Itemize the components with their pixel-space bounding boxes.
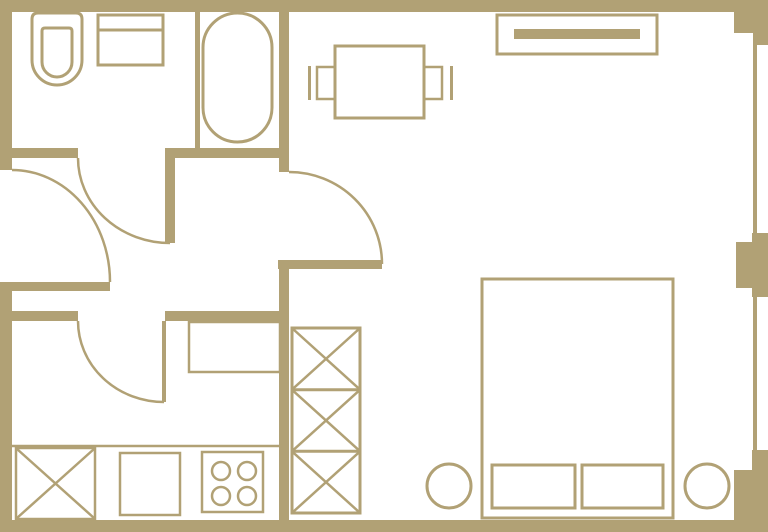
wall-pier-mid-right-outer bbox=[752, 233, 768, 297]
entry-door-swing bbox=[12, 170, 110, 282]
bathroom-door-leaf bbox=[165, 158, 175, 243]
pillow-right bbox=[582, 465, 663, 508]
chair-right-back bbox=[450, 66, 453, 100]
wall-hall-living-upper bbox=[279, 0, 289, 172]
kitchen-door-leaf bbox=[162, 321, 166, 402]
doors-layer bbox=[12, 158, 382, 402]
bathroom-layer bbox=[32, 13, 272, 142]
bedside-stool-right bbox=[685, 464, 729, 508]
wall-corner-bottom-right-inner bbox=[734, 470, 768, 532]
wall-pier-mid-right-inner bbox=[736, 242, 752, 288]
chair-left-seat bbox=[317, 67, 335, 99]
bedroom-layer bbox=[427, 15, 729, 518]
dining-layer bbox=[308, 46, 453, 118]
pillow-left bbox=[492, 465, 575, 508]
wall-kitchen-north-left bbox=[0, 311, 78, 321]
wall-kitchen-north-right bbox=[165, 311, 289, 321]
wardrobe-cross-bottom bbox=[293, 452, 359, 512]
double-bed bbox=[482, 279, 673, 518]
kitchen-layer bbox=[12, 322, 283, 519]
wall-exterior-left-upper bbox=[0, 0, 12, 170]
chair-left-back bbox=[308, 66, 311, 100]
floor-plan bbox=[0, 0, 768, 532]
bathtub bbox=[203, 13, 272, 142]
toilet-bowl bbox=[42, 28, 72, 77]
bedside-stool-left bbox=[427, 464, 471, 508]
window-glazing-upper bbox=[753, 45, 757, 233]
washing-machine bbox=[16, 448, 95, 519]
wall-pier-top-right-step bbox=[753, 33, 768, 45]
entry-door-leaf bbox=[12, 282, 110, 291]
tv-console-screen bbox=[514, 29, 640, 39]
wardrobe-cross-middle bbox=[293, 391, 359, 451]
washbasin bbox=[98, 15, 163, 65]
wardrobe-cross-top bbox=[293, 329, 359, 389]
living-door-swing bbox=[289, 172, 382, 264]
chair-right-seat bbox=[424, 67, 442, 99]
stove-burner-2 bbox=[238, 462, 256, 480]
wardrobe-layer bbox=[292, 328, 360, 513]
kitchen-sink-unit bbox=[120, 453, 180, 515]
bathroom-door-swing bbox=[78, 158, 170, 243]
stove-burner-1 bbox=[212, 462, 230, 480]
wall-pier-top-right bbox=[734, 0, 768, 33]
toilet-outline bbox=[32, 13, 82, 85]
wall-kitchen-living-divider bbox=[279, 268, 289, 532]
wall-exterior-top bbox=[0, 0, 768, 12]
living-door-leaf bbox=[278, 260, 382, 269]
kitchen-cabinet bbox=[189, 322, 280, 372]
floor-plan-svg bbox=[0, 0, 768, 532]
wall-exterior-bottom bbox=[0, 520, 768, 532]
wall-bathroom-divider bbox=[195, 0, 200, 148]
dining-table bbox=[335, 46, 424, 118]
window-glazing-lower bbox=[753, 297, 757, 450]
kitchen-door-swing bbox=[78, 321, 164, 402]
wall-bathroom-south-right bbox=[165, 148, 289, 158]
wall-bathroom-south-left bbox=[0, 148, 78, 158]
stove-burner-3 bbox=[212, 487, 230, 505]
walls-layer bbox=[0, 0, 768, 532]
stove-burner-4 bbox=[238, 487, 256, 505]
